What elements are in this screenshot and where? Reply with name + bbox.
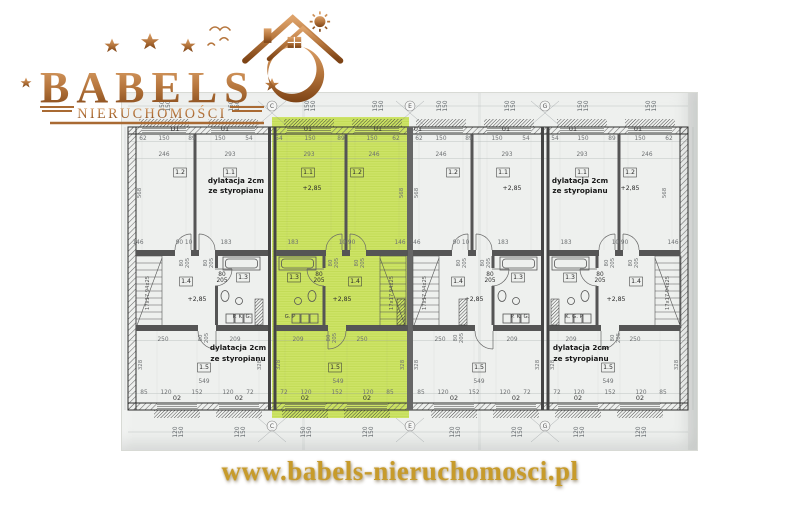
dimension-label: 10 90 [339,240,356,246]
level-mark: +2,85 [503,185,522,192]
dimension-label: 246 [435,152,446,158]
dimension-label: 568 [414,187,420,198]
dimension-label: 89 [337,136,345,142]
dimension-label: 80205 [216,272,227,284]
expansion-joint-annotation: ze styropianu [552,186,607,195]
dimension-label: 120 [222,390,233,396]
level-mark: +2,85 [621,185,640,192]
dimension-label: 150 [634,136,645,142]
dimension-label: 246 [641,152,652,158]
level-mark: +2,85 [303,185,322,192]
window-label: 01 [569,125,577,133]
room-label: 1.4 [350,278,360,285]
chimney-icon [264,28,272,42]
expansion-joint-annotation: dylatacja 2cm [208,176,264,185]
dimension-label: 54 [551,136,559,142]
dimension-label: 80205 [203,258,215,268]
appliance-label: K. G. P [565,314,584,320]
dimension-label: 89 [188,136,196,142]
room-label: 1.4 [631,278,641,285]
dimension-label: 54 [522,136,530,142]
room-label: 1.1 [498,169,508,176]
dimension-label: 90 10 [453,240,470,246]
room-label: 1.4 [453,278,463,285]
dimension-label: 62 [392,136,400,142]
dimension-label: 72 [553,390,561,396]
listing-image: 1501501501501501501501501501501501501501… [0,0,800,505]
room-label: 1.5 [474,364,484,371]
dimension-label: 246 [158,152,169,158]
dimension-label: 209 [506,337,517,343]
dimension-label: 80205 [456,258,468,268]
window-dimension: 150150 [301,426,313,437]
dimension-label: 89 [465,136,473,142]
dimension-label: 62 [665,136,673,142]
dimension-label: 80205 [480,258,492,268]
room-label: 1.1 [303,169,313,176]
room-label: 1.1 [577,169,587,176]
dimension-label: 72 [246,390,254,396]
brand-name: BABELS [40,63,256,112]
dimension-label: 150 [158,136,169,142]
dimension-label: 293 [501,152,512,158]
dimension-label: 293 [576,152,587,158]
room-label: 1.1 [225,169,235,176]
dimension-label: 80205 [604,258,616,268]
dimension-label: 549 [332,379,343,385]
dimension-label: 72 [523,390,531,396]
dimension-label: 183 [497,240,508,246]
window-label: 02 [235,394,243,402]
window-dimension: 150150 [373,100,385,111]
birds-icon [208,27,230,45]
window-label: 01 [634,125,642,133]
dimension-label: 80205 [453,333,465,343]
dimension-label: 120 [437,390,448,396]
window-dimension: 120150 [450,426,462,437]
dimension-label: 85 [386,390,394,396]
level-mark: +2,85 [188,296,207,303]
axis-marker: E [408,103,412,110]
level-mark: +2,85 [607,296,626,303]
brand-subtitle: NIERUCHOMOŚCI [77,105,226,122]
expansion-joint-annotation: dylatacja 2cm [552,176,608,185]
window-label: 02 [363,394,371,402]
window-label: 02 [512,394,520,402]
window-label: 02 [636,394,644,402]
room-label: 1.3 [289,274,299,281]
dimension-label: 120 [499,390,510,396]
window-label: 02 [450,394,458,402]
window-dimension: 150150 [437,100,449,111]
dimension-label: 85 [417,390,425,396]
appliance-label: G. P [285,314,297,320]
dimension-label: 549 [198,379,209,385]
dimension-label: 328 [674,359,680,370]
dimension-label: 80205 [628,258,640,268]
dimension-label: 328 [535,359,541,370]
window-dimension: 120150 [512,426,524,437]
window-dimension: 120150 [173,426,185,437]
level-mark: +2,85 [333,296,352,303]
dimension-label: 568 [137,187,143,198]
window-label: D1 [171,125,180,133]
expansion-joint-annotation: dylatacja 2cm [210,343,266,352]
dimension-label: 328 [414,359,420,370]
window-label: 01 [502,125,510,133]
window-label: 01 [414,125,422,133]
window-label: 02 [301,394,309,402]
dimension-label: 150 [577,136,588,142]
sun-icon [310,11,330,31]
dimension-label: 152 [468,390,479,396]
dimension-label: 152 [331,390,342,396]
dimension-label: 80205 [179,258,191,268]
dimension-label: 150 [366,136,377,142]
dimension-label: 146 [667,240,678,246]
expansion-joint-annotation: ze styropianu [553,354,608,363]
dimension-label: 328 [400,359,406,370]
expansion-joint-annotation: dylatacja 2cm [553,343,609,352]
dimension-label: 54 [275,136,283,142]
room-label: 1.5 [603,364,613,371]
stairs-dimension: 17x17.94x25 [422,276,428,310]
dimension-label: 146 [394,240,405,246]
window-dimension: 120150 [363,426,375,437]
dimension-label: 568 [399,187,405,198]
room-label: 1.3 [565,274,575,281]
room-label: 1.2 [175,169,185,176]
dimension-label: 85 [140,390,148,396]
dimension-label: 72 [280,390,288,396]
window-dimension: 150150 [505,100,517,111]
dimension-label: 80205 [198,333,210,343]
dimension-label: 250 [434,337,445,343]
window-label: 02 [574,394,582,402]
dimension-label: 10 90 [612,240,629,246]
floor-plan: 1501501501501501501501501501501501501501… [122,93,697,450]
room-label: 1.3 [513,274,523,281]
room-label: 1.5 [330,364,340,371]
room-label: 1.5 [199,364,209,371]
highlighted-unit-overlay [272,117,409,418]
room-label: 1.3 [238,274,248,281]
expansion-joint-annotation: ze styropianu [208,186,263,195]
stairs-dimension: 17x17.94x25 [145,276,151,310]
window-dimension: 120150 [636,426,648,437]
window-label: 02 [173,394,181,402]
dimension-label: 152 [604,390,615,396]
dimension-label: 183 [287,240,298,246]
appliance-label: P. K. G. [511,314,530,320]
house-icon [245,11,340,102]
level-mark: +2,85 [465,296,484,303]
room-label: 1.2 [448,169,458,176]
dimension-label: 146 [409,240,420,246]
dimension-label: 80205 [484,272,495,284]
dimension-label: 62 [139,136,147,142]
room-label: 1.2 [625,169,635,176]
dimension-label: 90 10 [176,240,193,246]
window-label: 01 [374,125,382,133]
dimension-label: 85 [659,390,667,396]
dimension-label: 293 [224,152,235,158]
dimension-label: 62 [415,136,423,142]
dimension-label: 183 [220,240,231,246]
room-label: 1.4 [181,278,191,285]
dimension-label: 150 [491,136,502,142]
babels-logo: BABELS NIERUCHOMOŚCI [4,4,364,126]
dimension-label: 246 [368,152,379,158]
dimension-label: 146 [132,240,143,246]
dimension-label: 120 [160,390,171,396]
window-label: 01 [304,125,312,133]
floor-plan-drawing: 1501501501501501501501501501501501501501… [122,93,697,450]
dimension-label: 328 [138,359,144,370]
appliance-label: P. K. G. [233,314,252,320]
gable-window-icon [288,37,302,48]
dimension-label: 80205 [594,272,605,284]
dimension-label: 328 [276,359,282,370]
dimension-label: 80205 [610,333,622,343]
window-dimension: 120150 [235,426,247,437]
axis-marker: E [408,423,412,430]
window-dimension: 120150 [574,426,586,437]
dimension-label: 549 [473,379,484,385]
window-dimension: 150150 [578,100,590,111]
dimension-label: 150 [304,136,315,142]
dimension-label: 250 [629,337,640,343]
dimension-label: 250 [356,337,367,343]
room-label: 1.2 [352,169,362,176]
dimension-label: 250 [157,337,168,343]
dimension-label: 568 [662,187,668,198]
dimension-label: 328 [257,359,263,370]
website-url: www.babels-nieruchomosci.pl [0,456,800,487]
stairs-dimension: 17x17.94x25 [665,276,671,310]
window-dimension: 150150 [646,100,658,111]
axis-marker: C [270,423,274,430]
dimension-label: 54 [245,136,253,142]
dimension-label: 549 [602,379,613,385]
dimension-label: 152 [191,390,202,396]
axis-marker: G [543,423,548,430]
stairs-dimension: 17x17.94x25 [389,276,395,310]
dimension-label: 209 [292,337,303,343]
dimension-label: 150 [214,136,225,142]
dimension-label: 328 [550,359,556,370]
dimension-label: 293 [303,152,314,158]
axis-marker: G [543,103,548,110]
dimension-label: 89 [608,136,616,142]
dimension-label: 183 [560,240,571,246]
dimension-label: 150 [435,136,446,142]
window-label: 01 [221,125,229,133]
